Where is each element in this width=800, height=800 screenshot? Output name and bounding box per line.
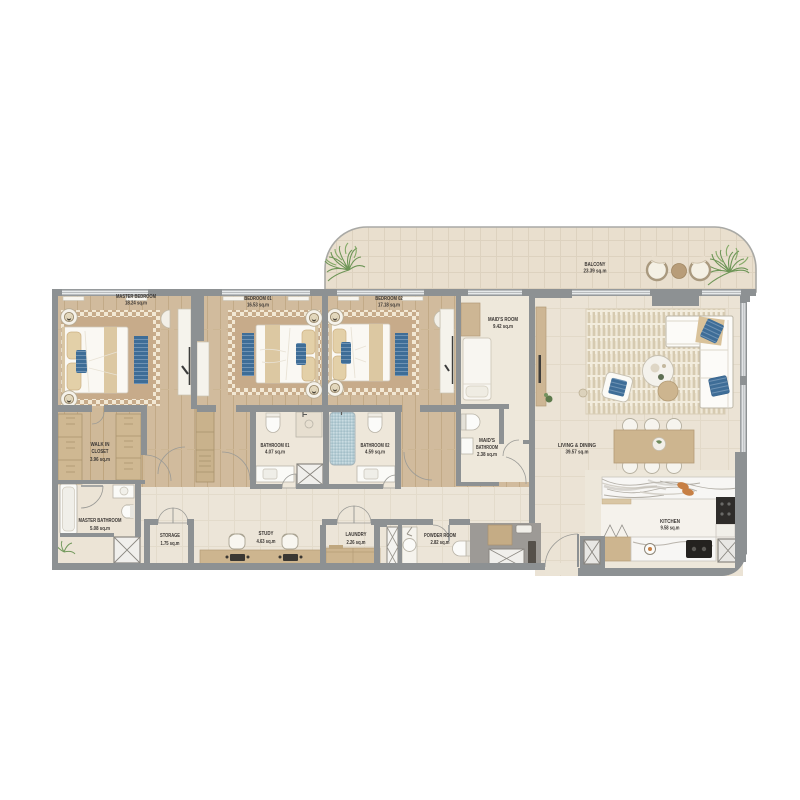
- svg-text:BATHROOM 01: BATHROOM 01: [261, 443, 290, 449]
- svg-text:MAID'S ROOM: MAID'S ROOM: [488, 317, 518, 323]
- svg-text:1.75 sq.m: 1.75 sq.m: [161, 541, 180, 547]
- svg-text:9.58 sq.m: 9.58 sq.m: [661, 526, 680, 532]
- svg-text:POWDER ROOM: POWDER ROOM: [424, 533, 456, 539]
- svg-text:STORAGE: STORAGE: [160, 533, 180, 539]
- svg-text:KITCHEN: KITCHEN: [660, 519, 680, 525]
- svg-text:39.57 sq.m: 39.57 sq.m: [566, 450, 589, 456]
- svg-text:23.39 sq.m: 23.39 sq.m: [584, 269, 607, 275]
- svg-text:18.24 sq.m: 18.24 sq.m: [125, 301, 147, 307]
- svg-text:BALCONY: BALCONY: [585, 262, 606, 268]
- svg-text:LIVING & DINING: LIVING & DINING: [558, 443, 596, 449]
- svg-text:BATHROOM: BATHROOM: [476, 445, 498, 451]
- svg-text:2.38 sq.m: 2.38 sq.m: [477, 452, 497, 458]
- svg-text:BATHROOM 02: BATHROOM 02: [361, 443, 390, 449]
- svg-text:2.82 sq.m: 2.82 sq.m: [431, 540, 450, 546]
- svg-text:STUDY: STUDY: [259, 531, 274, 537]
- svg-text:MAID'S: MAID'S: [479, 438, 495, 444]
- svg-text:4.59 sq.m: 4.59 sq.m: [365, 450, 385, 456]
- svg-text:CLOSET: CLOSET: [92, 449, 109, 455]
- svg-text:MASTER BATHROOM: MASTER BATHROOM: [79, 518, 122, 524]
- svg-text:9.42 sq.m: 9.42 sq.m: [493, 324, 513, 330]
- svg-text:4.63 sq.m: 4.63 sq.m: [257, 539, 276, 545]
- svg-text:3.96 sq.m: 3.96 sq.m: [90, 457, 110, 463]
- svg-text:2.26 sq.m: 2.26 sq.m: [347, 540, 366, 546]
- svg-text:MASTER BEDROOM: MASTER BEDROOM: [116, 294, 156, 300]
- svg-text:BEDROOM 01: BEDROOM 01: [244, 296, 272, 302]
- svg-text:16.53 sq.m: 16.53 sq.m: [247, 303, 269, 309]
- svg-text:17.18 sq.m: 17.18 sq.m: [378, 303, 400, 309]
- svg-text:BEDROOM 02: BEDROOM 02: [375, 296, 403, 302]
- svg-text:WALK IN: WALK IN: [91, 442, 110, 448]
- svg-text:5.08 sq.m: 5.08 sq.m: [90, 526, 110, 532]
- svg-text:LAUNDRY: LAUNDRY: [346, 532, 367, 538]
- svg-text:4.07 sq.m: 4.07 sq.m: [265, 450, 285, 456]
